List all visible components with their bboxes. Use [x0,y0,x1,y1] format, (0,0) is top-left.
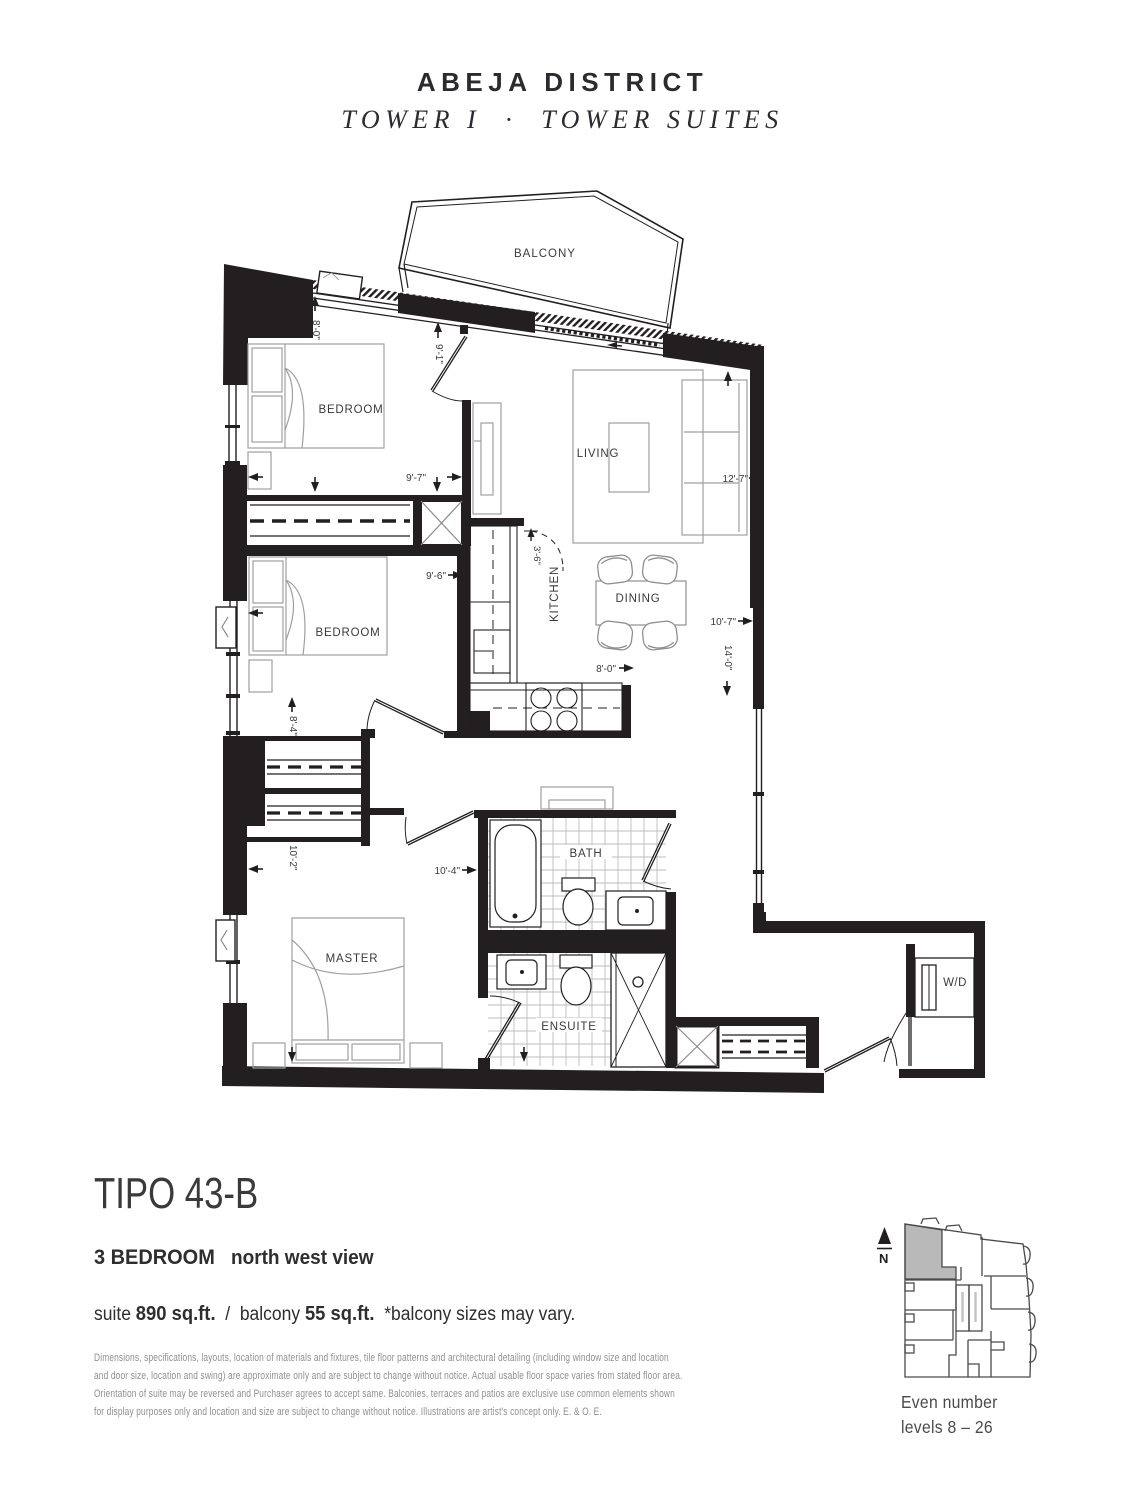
svg-text:W/D: W/D [943,977,967,989]
svg-text:BEDROOM: BEDROOM [318,404,383,416]
svg-text:9'-7": 9'-7" [406,473,426,484]
svg-text:9'-1": 9'-1" [433,344,444,364]
svg-text:8'-0": 8'-0" [596,664,616,675]
svg-text:DINING: DINING [615,593,660,605]
svg-text:ENSUITE: ENSUITE [541,1021,596,1033]
svg-text:14'-0": 14'-0" [722,645,733,671]
svg-text:KITCHEN: KITCHEN [549,566,561,622]
svg-text:10'-2": 10'-2" [287,845,298,871]
svg-text:8'-4": 8'-4" [287,716,298,736]
svg-text:10'-4": 10'-4" [435,866,461,877]
svg-text:BEDROOM: BEDROOM [315,627,380,639]
svg-text:3'-6": 3'-6" [531,546,542,565]
svg-text:MASTER: MASTER [326,953,379,965]
svg-text:12'-7": 12'-7" [723,474,749,485]
svg-text:9'-6": 9'-6" [426,571,446,582]
svg-text:N: N [879,1251,888,1266]
svg-text:BALCONY: BALCONY [514,248,576,260]
svg-text:10'-7": 10'-7" [711,617,737,628]
svg-text:8'-0": 8'-0" [310,320,321,340]
svg-text:LIVING: LIVING [577,448,620,460]
svg-text:BATH: BATH [569,848,602,860]
